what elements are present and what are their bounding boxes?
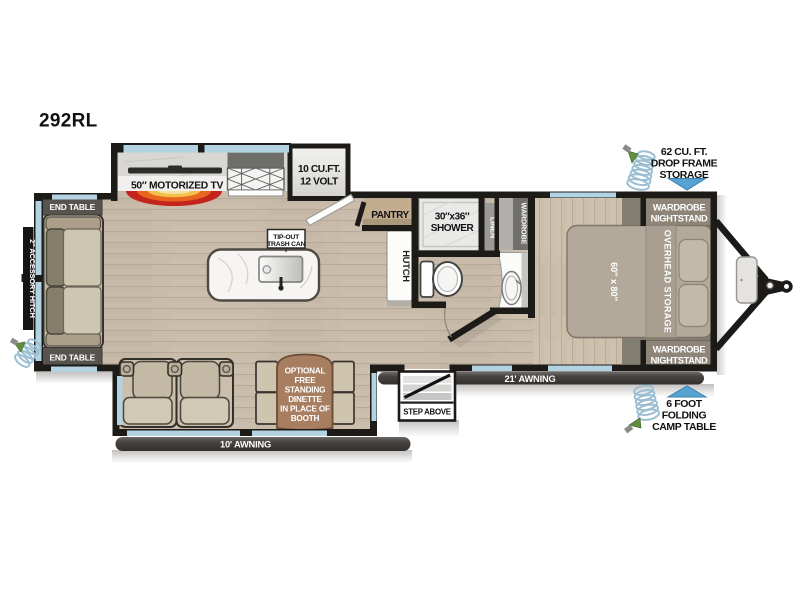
svg-text:DINETTE: DINETTE	[288, 395, 322, 404]
svg-text:10 CU.FT.: 10 CU.FT.	[298, 164, 341, 175]
svg-text:END TABLE: END TABLE	[50, 353, 96, 363]
svg-text:WARDROBE: WARDROBE	[653, 345, 706, 355]
svg-text:12 VOLT: 12 VOLT	[300, 177, 339, 188]
svg-text:SHOWER: SHOWER	[431, 223, 475, 234]
svg-text:TIP-OUT: TIP-OUT	[273, 234, 300, 241]
svg-text:TRASH CAN: TRASH CAN	[267, 241, 306, 248]
svg-text:6 FOOT: 6 FOOT	[666, 398, 703, 410]
svg-text:BOOTH: BOOTH	[291, 414, 320, 423]
svg-text:STANDING: STANDING	[285, 386, 326, 395]
svg-text:WARDROBE: WARDROBE	[520, 203, 529, 245]
svg-text:DROP FRAME: DROP FRAME	[651, 158, 718, 170]
svg-text:STEP ABOVE: STEP ABOVE	[403, 408, 450, 417]
svg-text:21' AWNING: 21' AWNING	[504, 374, 555, 384]
svg-text:PANTRY: PANTRY	[371, 210, 409, 221]
svg-text:10' AWNING: 10' AWNING	[220, 440, 271, 450]
svg-text:IN PLACE OF: IN PLACE OF	[280, 405, 330, 414]
svg-text:OVERHEAD STORAGE: OVERHEAD STORAGE	[663, 230, 673, 333]
svg-text:62 CU. FT.: 62 CU. FT.	[661, 146, 708, 158]
svg-text:FREE: FREE	[294, 376, 316, 385]
svg-text:NIGHTSTAND: NIGHTSTAND	[651, 356, 708, 366]
svg-text:HUTCH: HUTCH	[401, 250, 411, 282]
svg-text:NIGHTSTAND: NIGHTSTAND	[651, 214, 708, 224]
svg-text:60″ x 80″: 60″ x 80″	[609, 262, 619, 301]
svg-text:50″ MOTORIZED TV: 50″ MOTORIZED TV	[131, 181, 223, 192]
svg-text:OPTIONAL: OPTIONAL	[285, 367, 326, 376]
svg-text:2″ ACCESSORY HITCH: 2″ ACCESSORY HITCH	[28, 239, 37, 318]
svg-text:END TABLE: END TABLE	[50, 202, 96, 212]
svg-text:WARDROBE: WARDROBE	[653, 203, 706, 213]
svg-text:STORAGE: STORAGE	[660, 169, 709, 181]
svg-text:292RL: 292RL	[39, 111, 98, 132]
svg-text:CAMP TABLE: CAMP TABLE	[652, 421, 716, 433]
svg-text:30″x36″: 30″x36″	[435, 212, 470, 223]
svg-text:FOLDING: FOLDING	[662, 410, 707, 422]
